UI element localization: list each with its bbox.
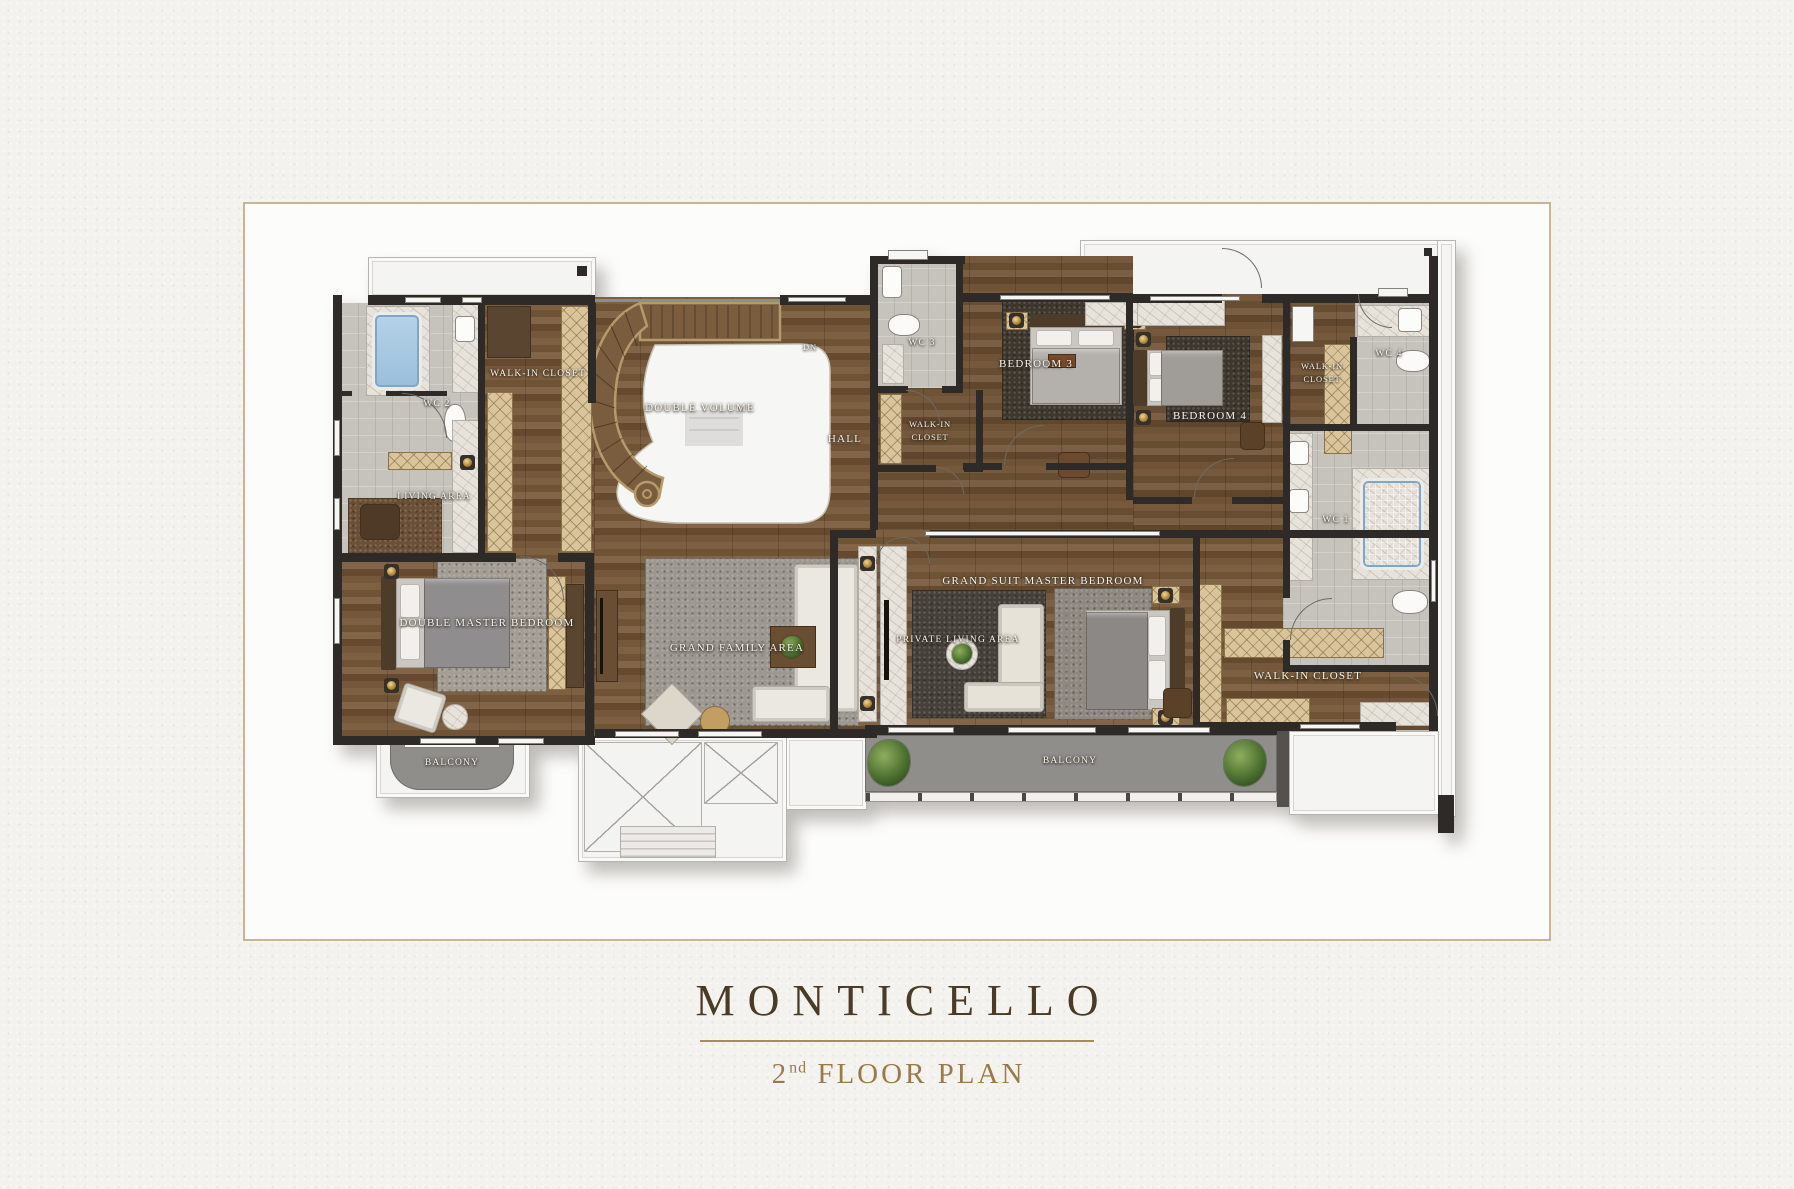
wall — [1350, 337, 1357, 430]
wall — [877, 386, 908, 393]
wall — [1193, 538, 1200, 730]
room-label-closet-b4-line2: CLOSET — [1304, 374, 1341, 384]
window — [1128, 727, 1210, 733]
wall — [963, 463, 1002, 470]
window — [1000, 295, 1110, 300]
window — [615, 731, 679, 737]
closet-bench — [1292, 306, 1314, 342]
entry-steps — [620, 826, 716, 858]
wall — [942, 386, 963, 393]
wall — [588, 303, 596, 403]
room-label-grand-family-area: GRAND FAMILY AREA — [670, 642, 804, 654]
ceiling-light — [1009, 313, 1024, 328]
room-label-closet-b4-line1: WALK-IN — [1301, 361, 1343, 371]
fireplace-wall — [452, 420, 481, 553]
window — [1150, 296, 1240, 301]
headboard — [1133, 350, 1147, 406]
room-label-balcony-main: BALCONY — [1043, 756, 1097, 766]
wall — [341, 391, 352, 396]
closet-shelves — [1226, 698, 1310, 724]
sink — [455, 316, 475, 342]
sofa — [964, 682, 1044, 712]
room-label-dn: DN — [803, 342, 817, 352]
window — [420, 738, 476, 744]
stair-curl — [635, 482, 659, 506]
pillow — [1148, 616, 1166, 656]
jacuzzi — [1360, 478, 1424, 570]
window — [1300, 724, 1360, 729]
tv — [884, 600, 889, 680]
stair-run — [640, 303, 780, 340]
floor-number: 2 — [772, 1058, 790, 1090]
project-title: MONTICELLO — [0, 975, 1794, 1026]
terrace-top-left — [368, 257, 596, 299]
wall — [1283, 427, 1290, 598]
wall — [1046, 463, 1133, 470]
toilet — [888, 314, 920, 336]
room-label-double-master-bedroom: DOUBLE MASTER BEDROOM — [400, 617, 575, 629]
balcony-railing — [865, 792, 1277, 802]
page: WC 2 WALK-IN CLOSET DOUBLE VOLUME DN HAL… — [0, 0, 1794, 1189]
ghost-piano — [685, 410, 743, 446]
wall — [333, 553, 516, 562]
pillow — [400, 584, 420, 618]
window — [498, 738, 544, 744]
duvet — [1032, 348, 1120, 404]
closet-shelves — [880, 394, 902, 464]
title-divider — [700, 1040, 1094, 1042]
window — [698, 731, 762, 737]
dresser — [487, 306, 531, 358]
room-label-bedroom4: BEDROOM 4 — [1173, 410, 1247, 422]
floor-ordinal-suffix: nd — [789, 1059, 807, 1076]
wall — [478, 303, 485, 553]
wall — [956, 262, 963, 388]
tv-console — [566, 584, 584, 688]
ceiling-light — [1136, 410, 1151, 425]
pillow — [1078, 330, 1114, 346]
ceiling-light — [384, 564, 399, 579]
balcony-divider-wall — [1277, 729, 1289, 807]
floor-plan-subtitle: 2nd FLOOR PLAN — [0, 1058, 1794, 1091]
vanity — [882, 344, 904, 384]
room-label-closet-b3-line2: CLOSET — [912, 432, 949, 442]
floor-plan-text: FLOOR PLAN — [817, 1058, 1025, 1090]
headboard — [381, 576, 396, 670]
wall — [1126, 300, 1133, 500]
window — [334, 598, 340, 644]
window — [405, 297, 441, 303]
wall — [1232, 497, 1290, 504]
toilet — [1392, 590, 1428, 614]
room-label-walk-in-closet-master: WALK-IN CLOSET — [490, 369, 586, 379]
ceiling-light — [860, 696, 875, 711]
bench — [1137, 300, 1225, 326]
side-table — [442, 704, 468, 730]
tv — [600, 598, 603, 674]
window — [1431, 560, 1436, 602]
closet-shelves — [1198, 584, 1222, 724]
bathtub — [372, 312, 422, 390]
room-label-grand-suite-master-bedroom: GRAND SUIT MASTER BEDROOM — [942, 575, 1143, 587]
room-label-living-area: LIVING AREA — [397, 492, 471, 502]
terrace-right-strip — [1437, 240, 1456, 817]
room-label-walk-in-closet-suite: WALK-IN CLOSET — [1254, 670, 1362, 682]
terrace-corner-wall — [1438, 795, 1454, 833]
ceiling-light — [384, 678, 399, 693]
wall — [837, 530, 876, 538]
sink — [1289, 441, 1309, 465]
window — [334, 498, 340, 530]
room-label-hall: HALL — [828, 433, 862, 445]
pillow — [1036, 330, 1072, 346]
ceiling-light — [1136, 332, 1151, 347]
terrace-bottom-right — [1289, 731, 1439, 815]
armchair — [1240, 422, 1265, 450]
room-label-wc2: WC 2 — [423, 399, 450, 409]
wall — [877, 465, 936, 472]
window — [888, 250, 928, 260]
sofa-chaise — [752, 686, 830, 722]
room-label-wc4: WC 4 — [1375, 349, 1402, 359]
pillow — [400, 626, 420, 660]
wall — [870, 256, 878, 530]
window — [334, 420, 340, 456]
room-label-balcony-left: BALCONY — [425, 758, 479, 768]
closet-shelves — [487, 392, 513, 552]
ceiling-light — [860, 556, 875, 571]
duvet — [1161, 350, 1223, 406]
title-block: MONTICELLO 2nd FLOOR PLAN — [0, 975, 1794, 1091]
ceiling-light — [460, 455, 475, 470]
wall — [1193, 722, 1396, 731]
room-label-bedroom3: BEDROOM 3 — [999, 358, 1073, 370]
wall — [558, 553, 594, 562]
terrace-center — [785, 736, 867, 810]
dresser — [1262, 335, 1282, 423]
credenza — [388, 452, 452, 470]
sink — [1398, 308, 1422, 332]
sink — [882, 266, 902, 298]
suite-window — [925, 531, 1160, 536]
armchair — [1163, 688, 1192, 718]
wall — [1429, 256, 1438, 672]
armchair — [360, 504, 400, 540]
sink — [1289, 489, 1309, 513]
terrace-marker — [1424, 248, 1432, 256]
wall — [830, 530, 838, 732]
room-label-closet-b3-line1: WALK-IN — [909, 419, 951, 429]
room-label-wc3: WC 3 — [908, 338, 935, 348]
room-label-private-living-area: PRIVATE LIVING AREA — [896, 635, 1019, 645]
window — [788, 297, 846, 302]
ceiling-light — [1158, 588, 1173, 603]
wall — [1283, 424, 1438, 431]
window — [1008, 727, 1096, 733]
window — [462, 297, 482, 303]
wall — [865, 725, 877, 737]
wall — [976, 390, 983, 470]
room-label-wc1: WC 1 — [1322, 515, 1349, 525]
wall — [585, 555, 594, 745]
window — [888, 727, 954, 733]
stair-railing — [595, 299, 780, 302]
duvet — [1086, 612, 1148, 710]
porch-skylight — [704, 742, 778, 804]
wall — [1133, 497, 1192, 504]
room-label-double-volume: DOUBLE VOLUME — [645, 402, 755, 414]
